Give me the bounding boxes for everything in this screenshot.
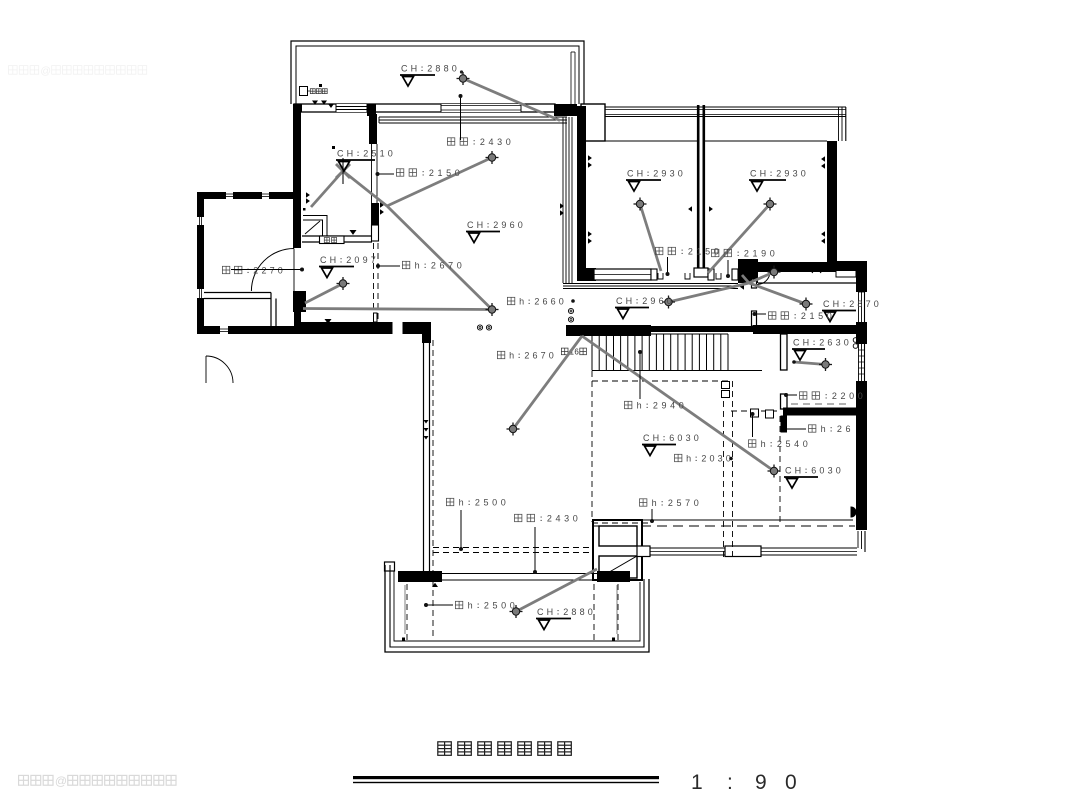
svg-text:0: 0 [510, 601, 515, 611]
svg-text:2: 2 [653, 169, 658, 179]
svg-text:6: 6 [543, 297, 548, 307]
svg-text:6: 6 [811, 466, 816, 476]
svg-text:0: 0 [492, 498, 497, 508]
svg-text:h: h [637, 401, 642, 411]
svg-text:2: 2 [563, 607, 568, 617]
svg-text:H: H [477, 220, 484, 230]
svg-text:2: 2 [832, 391, 837, 401]
svg-text:C: C [401, 64, 408, 74]
svg-text:6: 6 [533, 351, 538, 361]
svg-text:7: 7 [866, 299, 871, 309]
svg-text:5: 5 [677, 498, 682, 508]
svg-text:5: 5 [818, 311, 823, 321]
svg-text:2: 2 [642, 296, 647, 306]
svg-text:C: C [320, 255, 327, 265]
svg-text:h: h [519, 297, 524, 307]
svg-text:6: 6 [827, 338, 832, 348]
svg-text:2: 2 [849, 299, 854, 309]
svg-text:6: 6 [551, 297, 556, 307]
svg-text:8: 8 [580, 607, 585, 617]
svg-text:C: C [616, 296, 623, 306]
svg-text:0: 0 [457, 261, 462, 271]
svg-text:6: 6 [669, 433, 674, 443]
svg-text:2: 2 [744, 249, 749, 259]
svg-text:0: 0 [506, 137, 511, 147]
svg-text:5: 5 [786, 439, 791, 449]
svg-text:0: 0 [559, 297, 564, 307]
svg-text:3: 3 [718, 454, 723, 464]
svg-text:0: 0 [844, 338, 849, 348]
svg-text:1: 1 [691, 771, 703, 794]
svg-text:0: 0 [678, 169, 683, 179]
svg-text:7: 7 [371, 255, 376, 265]
svg-text:0: 0 [874, 299, 879, 309]
svg-text::: : [727, 771, 733, 794]
svg-text:C: C [537, 607, 544, 617]
svg-text:H: H [653, 433, 660, 443]
svg-text:0: 0 [549, 351, 554, 361]
svg-text:2: 2 [701, 454, 706, 464]
svg-text:@: @ [55, 774, 67, 788]
svg-text:0: 0 [849, 391, 854, 401]
svg-text:h: h [415, 261, 420, 271]
svg-text:2: 2 [801, 311, 806, 321]
svg-text:2: 2 [363, 149, 368, 159]
svg-text:4: 4 [670, 401, 675, 411]
svg-text:6: 6 [440, 261, 445, 271]
svg-text:0: 0 [858, 391, 863, 401]
svg-text:C: C [337, 149, 344, 159]
svg-text:5: 5 [446, 168, 451, 178]
svg-text:0: 0 [588, 607, 593, 617]
svg-text:C: C [627, 169, 634, 179]
svg-text:9: 9 [661, 169, 666, 179]
svg-text:1: 1 [697, 247, 702, 257]
svg-text:6: 6 [846, 424, 851, 434]
svg-text:H: H [347, 149, 354, 159]
svg-text:2: 2 [524, 351, 529, 361]
svg-text:6: 6 [510, 220, 515, 230]
svg-text:9: 9 [501, 220, 506, 230]
svg-text:9: 9 [784, 169, 789, 179]
svg-text:7: 7 [448, 261, 453, 271]
svg-text:5: 5 [484, 498, 489, 508]
svg-text:6: 6 [659, 296, 664, 306]
svg-text:2: 2 [547, 514, 552, 524]
svg-text:7: 7 [541, 351, 546, 361]
svg-text:0: 0 [836, 466, 841, 476]
svg-text:7: 7 [685, 498, 690, 508]
svg-text:H: H [637, 169, 644, 179]
svg-text:0: 0 [354, 255, 359, 265]
svg-text:5: 5 [705, 247, 710, 257]
svg-text:8: 8 [435, 64, 440, 74]
svg-text:0: 0 [573, 514, 578, 524]
svg-text:1: 1 [438, 168, 443, 178]
svg-text:C: C [793, 338, 800, 348]
svg-text:0: 0 [694, 433, 699, 443]
svg-text:9: 9 [363, 255, 368, 265]
svg-text:7: 7 [270, 266, 275, 276]
svg-text:0: 0 [770, 249, 775, 259]
svg-text:0: 0 [679, 401, 684, 411]
svg-text:0: 0 [827, 311, 832, 321]
svg-text:0: 0 [801, 169, 806, 179]
svg-text:9: 9 [650, 296, 655, 306]
svg-text:9: 9 [755, 771, 767, 794]
svg-text:0: 0 [452, 64, 457, 74]
svg-text:H: H [547, 607, 554, 617]
svg-text:6: 6 [574, 348, 579, 357]
svg-text:0: 0 [667, 296, 672, 306]
svg-text:H: H [411, 64, 418, 74]
svg-text:2: 2 [776, 169, 781, 179]
svg-text:C: C [823, 299, 830, 309]
svg-text:2: 2 [534, 297, 539, 307]
svg-text:3: 3 [564, 514, 569, 524]
svg-text:2: 2 [484, 601, 489, 611]
svg-text:@: @ [40, 65, 51, 77]
svg-text:9: 9 [761, 249, 766, 259]
svg-text:0: 0 [694, 498, 699, 508]
svg-text:3: 3 [497, 137, 502, 147]
svg-text:0: 0 [518, 220, 523, 230]
svg-text:9: 9 [662, 401, 667, 411]
svg-text:h: h [652, 498, 657, 508]
svg-text:3: 3 [836, 338, 841, 348]
svg-text:1: 1 [753, 249, 758, 259]
svg-text:1: 1 [810, 311, 815, 321]
svg-text:h: h [468, 601, 473, 611]
svg-text:3: 3 [670, 169, 675, 179]
svg-text:0: 0 [501, 601, 506, 611]
svg-text:H: H [803, 338, 810, 348]
svg-text:2: 2 [431, 261, 436, 271]
svg-text:5: 5 [493, 601, 498, 611]
svg-text:2: 2 [841, 391, 846, 401]
svg-text:3: 3 [686, 433, 691, 443]
svg-text:0: 0 [501, 498, 506, 508]
svg-text:2: 2 [475, 498, 480, 508]
svg-text:2: 2 [777, 439, 782, 449]
svg-text:2: 2 [253, 266, 258, 276]
svg-text:8: 8 [444, 64, 449, 74]
svg-text:H: H [760, 169, 767, 179]
svg-text:h: h [686, 454, 691, 464]
svg-text:5: 5 [371, 149, 376, 159]
svg-text:2: 2 [429, 168, 434, 178]
svg-text:8: 8 [857, 299, 862, 309]
svg-text:2: 2 [668, 498, 673, 508]
svg-text:H: H [626, 296, 633, 306]
svg-text:2: 2 [346, 255, 351, 265]
svg-text:0: 0 [819, 466, 824, 476]
svg-text:0: 0 [388, 149, 393, 159]
svg-text:2: 2 [837, 424, 842, 434]
svg-text:4: 4 [794, 439, 799, 449]
svg-text:2: 2 [688, 247, 693, 257]
svg-text:3: 3 [828, 466, 833, 476]
svg-text:0: 0 [710, 454, 715, 464]
svg-text:C: C [643, 433, 650, 443]
svg-text:2: 2 [262, 266, 267, 276]
svg-text:C: C [750, 169, 757, 179]
svg-text:H: H [833, 299, 840, 309]
svg-text:2: 2 [427, 64, 432, 74]
svg-text:0: 0 [455, 168, 460, 178]
svg-text:3: 3 [793, 169, 798, 179]
svg-text:2: 2 [653, 401, 658, 411]
svg-text:C: C [785, 466, 792, 476]
svg-text:H: H [795, 466, 802, 476]
svg-text:0: 0 [278, 266, 283, 276]
svg-text:4: 4 [556, 514, 561, 524]
svg-text:2: 2 [819, 338, 824, 348]
svg-text:h: h [459, 498, 464, 508]
svg-text:h: h [509, 351, 514, 361]
svg-text:8: 8 [571, 607, 576, 617]
svg-text:h: h [761, 439, 766, 449]
svg-text:H: H [330, 255, 337, 265]
svg-text:4: 4 [489, 137, 494, 147]
svg-text:C: C [467, 220, 474, 230]
svg-text:2: 2 [493, 220, 498, 230]
svg-text:0: 0 [714, 247, 719, 257]
svg-text:0: 0 [677, 433, 682, 443]
svg-text:0: 0 [785, 771, 797, 794]
svg-text:1: 1 [380, 149, 385, 159]
svg-text:h: h [821, 424, 826, 434]
svg-text:2: 2 [480, 137, 485, 147]
svg-text:0: 0 [803, 439, 808, 449]
